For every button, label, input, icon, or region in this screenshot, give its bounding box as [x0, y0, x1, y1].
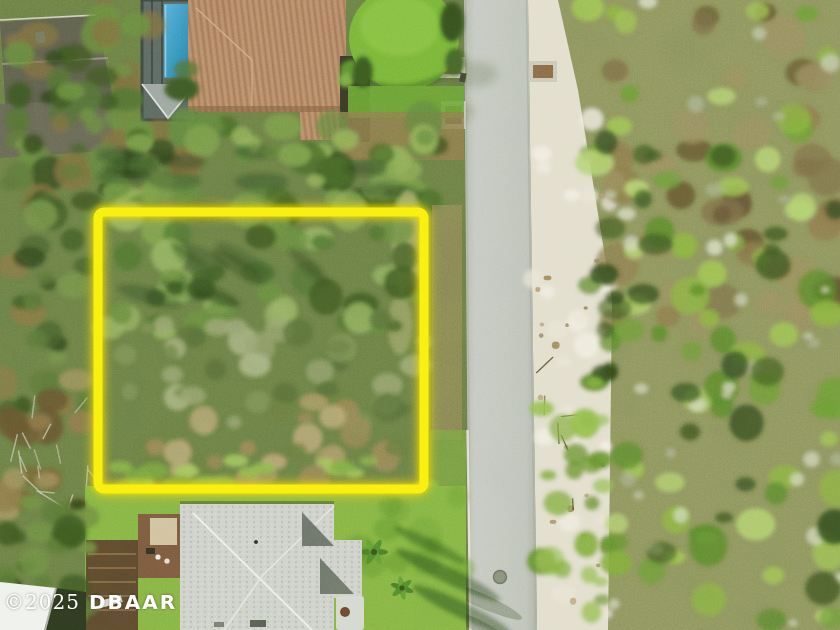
- watermark-year: ©2025: [4, 590, 80, 614]
- photo-grain: [0, 0, 840, 630]
- watermark: ©2025 DBAAR: [4, 590, 177, 614]
- watermark-name: DBAAR: [89, 590, 177, 614]
- aerial-photo-canvas: [0, 0, 840, 630]
- aerial-photo: ©2025 DBAAR: [0, 0, 840, 630]
